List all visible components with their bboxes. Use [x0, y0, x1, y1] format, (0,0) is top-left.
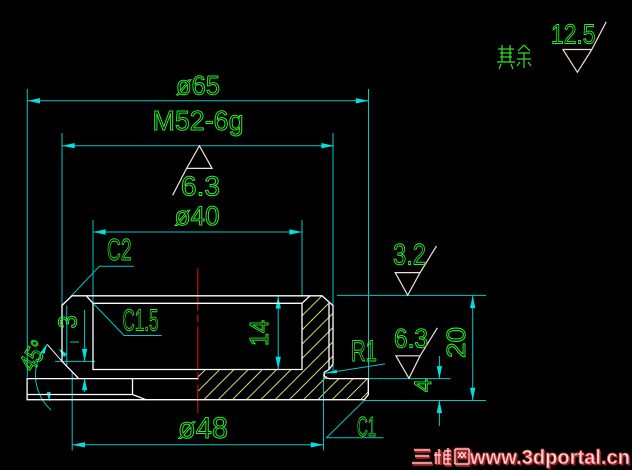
svg-text:C1.5: C1.5 [123, 303, 159, 338]
svg-text:14: 14 [244, 320, 274, 346]
svg-text:4: 4 [410, 379, 437, 392]
svg-text:R1: R1 [351, 335, 377, 368]
svg-text:12.5: 12.5 [551, 19, 596, 50]
svg-text:6.3: 6.3 [181, 171, 220, 202]
svg-text:www.3dportal.cn: www.3dportal.cn [469, 446, 630, 469]
svg-text:ø48: ø48 [178, 412, 228, 445]
svg-text:C1: C1 [357, 411, 376, 442]
svg-text:3: 3 [53, 315, 83, 329]
svg-text:3.2: 3.2 [393, 239, 426, 272]
svg-text:C2: C2 [107, 232, 132, 267]
svg-text:ø40: ø40 [175, 201, 220, 231]
svg-text:20: 20 [441, 327, 471, 358]
svg-text:ø65: ø65 [176, 70, 220, 100]
svg-text:M52-6g: M52-6g [153, 105, 244, 136]
svg-text:6.3: 6.3 [394, 324, 428, 354]
